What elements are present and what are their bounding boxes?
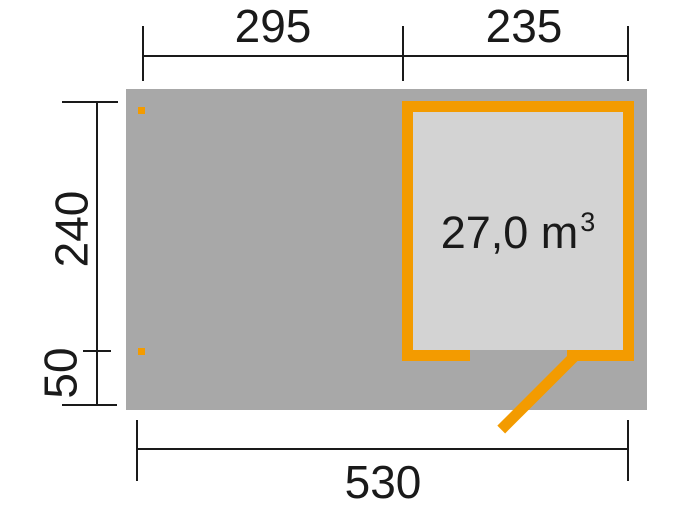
dimension-tick-left-middle bbox=[83, 350, 111, 352]
door-opening bbox=[470, 350, 567, 361]
dimension-label-235: 235 bbox=[398, 3, 650, 49]
dimension-tick-left-bottom bbox=[62, 404, 117, 406]
dimension-label-530: 530 bbox=[137, 459, 629, 505]
volume-label: 27,0 m3 bbox=[402, 200, 634, 255]
dimension-tick-left-top bbox=[62, 101, 118, 103]
dimension-label-295: 295 bbox=[142, 3, 404, 49]
post-marker-bottom bbox=[138, 348, 145, 355]
dimension-label-240-text: 240 bbox=[48, 191, 94, 268]
volume-superscript: 3 bbox=[580, 207, 595, 237]
post-marker-top bbox=[138, 107, 145, 114]
volume-value: 27,0 m bbox=[441, 207, 579, 258]
dimension-line-bottom bbox=[137, 448, 629, 450]
floorplan-diagram: 27,0 m3 295 235 240 50 530 bbox=[0, 0, 700, 525]
dimension-line-top bbox=[142, 55, 628, 57]
dimension-label-50-text: 50 bbox=[38, 347, 84, 398]
